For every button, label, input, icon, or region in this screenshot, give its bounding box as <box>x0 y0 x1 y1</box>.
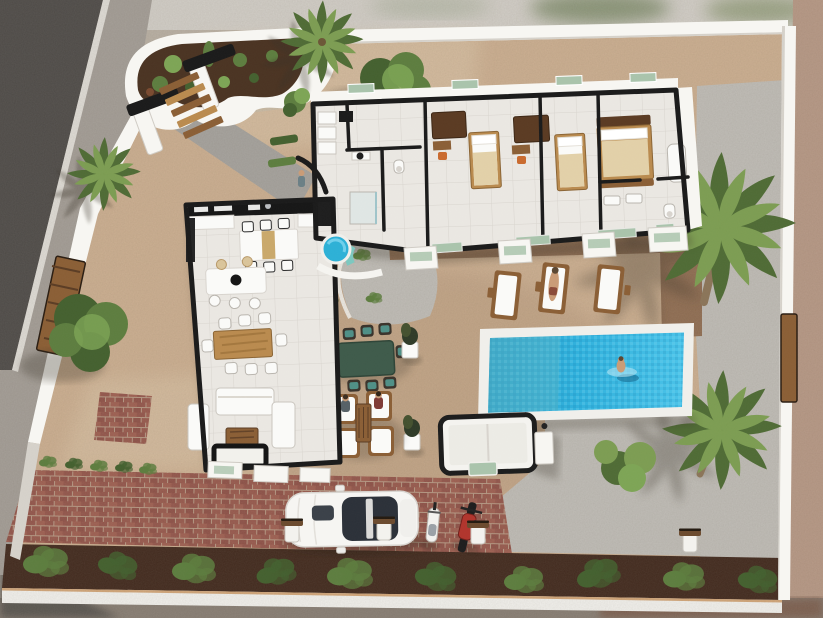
villa-aerial-render <box>0 0 823 618</box>
photo-grain <box>0 0 823 618</box>
